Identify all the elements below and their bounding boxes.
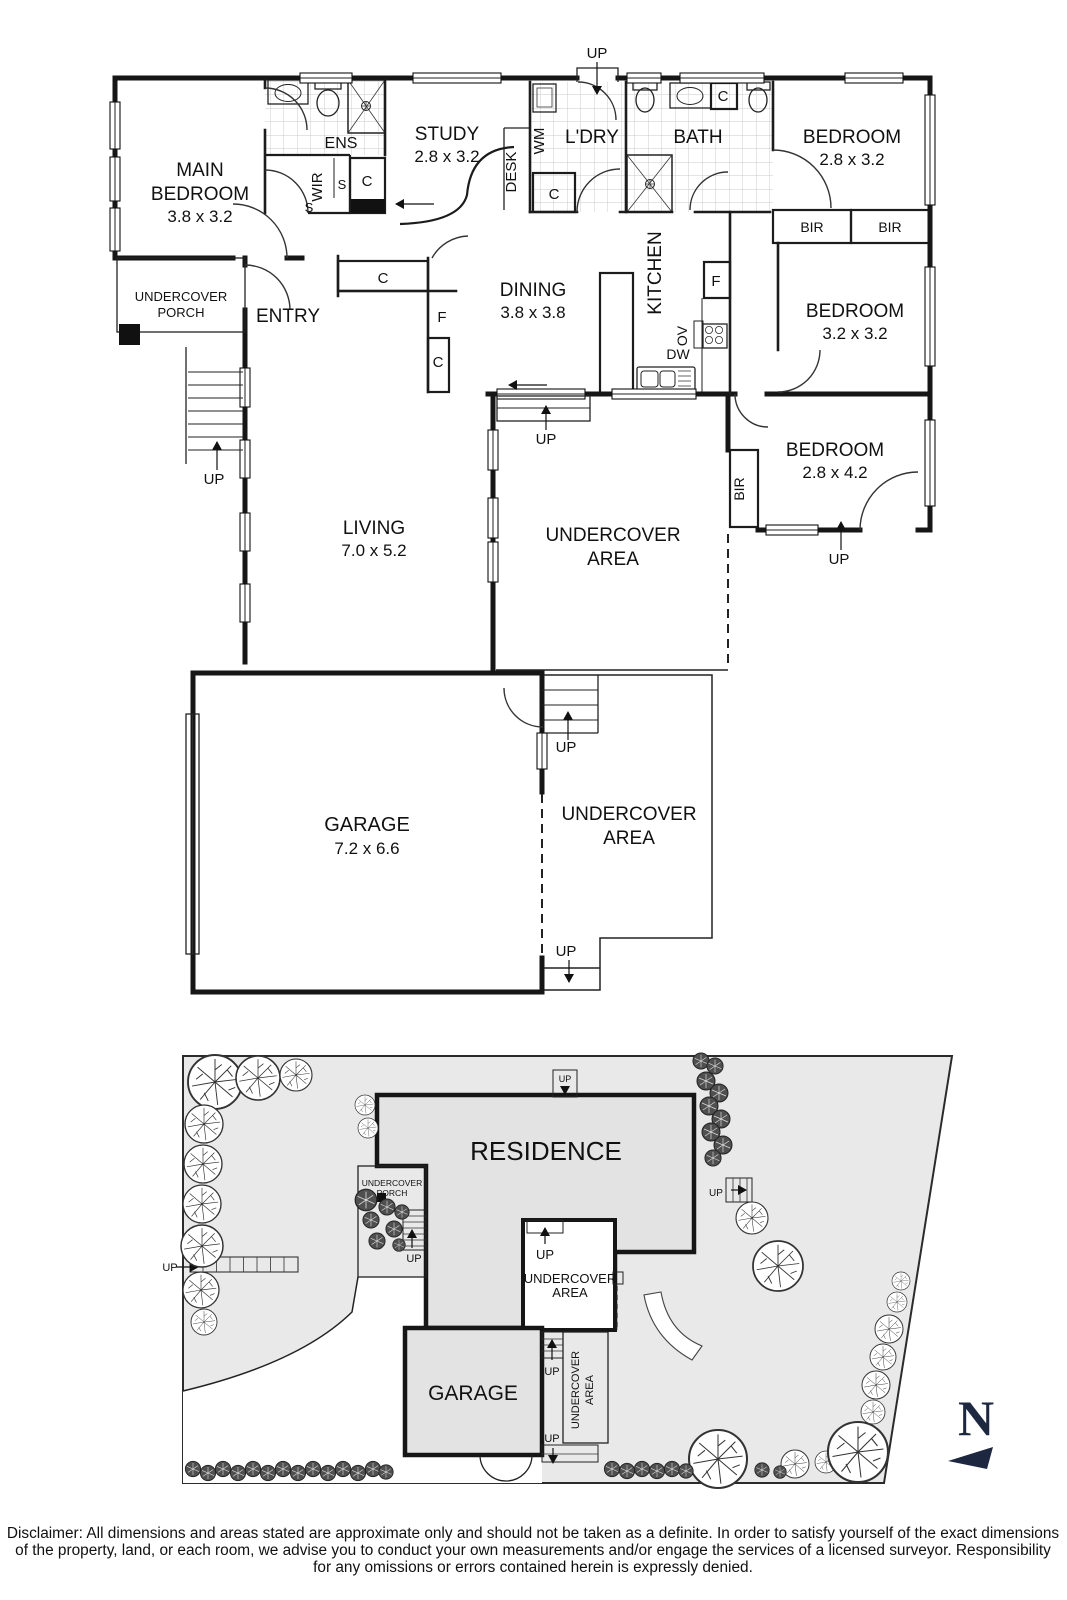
label-dw: DW [666, 346, 690, 362]
room-label-living: LIVING [343, 518, 405, 539]
room-label-study: STUDY [415, 124, 480, 145]
dims-bedroom3: 2.8 x 4.2 [802, 463, 867, 482]
label-c-bath: C [718, 88, 729, 105]
label-bir1: BIR [800, 219, 823, 235]
disclaimer-line1: Disclaimer: All dimensions and areas sta… [7, 1525, 1060, 1542]
label-bir2: BIR [878, 219, 901, 235]
site-label-strip-2: AREA [584, 1374, 596, 1405]
room-label-ens: ENS [325, 135, 358, 152]
site-plan: RESIDENCE UNDERCOVER PORCH UP UP UP UP U… [162, 1053, 952, 1488]
label-bir3: BIR [731, 477, 747, 500]
label-wm: WM [531, 128, 548, 155]
disclaimer-line3: for any omissions or errors contained he… [313, 1559, 753, 1576]
label-up-dining: UP [536, 431, 557, 448]
label-f-hall: F [437, 309, 446, 326]
site-label-strip-1: UNDERCOVER [570, 1351, 582, 1429]
kitchen-sink-icon [637, 367, 695, 391]
label-c-wir: C [362, 173, 373, 190]
label-c-hall2: C [433, 354, 444, 371]
kitchen-cooktop-icon [694, 321, 727, 348]
room-label-bath: BATH [673, 127, 722, 148]
room-label-dining: DINING [500, 280, 567, 301]
label-s2: S [305, 200, 314, 215]
site-label-up-porch: UP [406, 1253, 421, 1265]
room-label-ldry: L'DRY [565, 127, 619, 148]
site-label-porch-1: UNDERCOVER [362, 1178, 422, 1188]
compass-n-letter: N [958, 1390, 994, 1446]
label-s1: S [338, 177, 347, 192]
room-label-undercover2-1: UNDERCOVER [561, 804, 696, 825]
label-desk: DESK [503, 152, 520, 193]
disclaimer-line2: of the property, land, or each room, we … [15, 1542, 1051, 1559]
label-up-bedroom3: UP [829, 551, 850, 568]
site-label-porch-2: PORCH [377, 1188, 408, 1198]
site-label-garage: GARAGE [428, 1382, 518, 1405]
label-c-hall: C [378, 270, 389, 287]
room-label-porch-2: PORCH [158, 305, 205, 320]
dims-living: 7.0 x 5.2 [341, 541, 406, 560]
room-label-undercover1-2: AREA [587, 549, 639, 570]
floorplan-page: MAIN BEDROOM 3.8 x 3.2 ENS WIR S S C STU… [0, 0, 1067, 1600]
dims-study: 2.8 x 3.2 [414, 147, 479, 166]
label-c-ldry: C [549, 186, 560, 203]
compass: N [948, 1390, 994, 1469]
floor-plan: MAIN BEDROOM 3.8 x 3.2 ENS WIR S S C STU… [110, 45, 935, 992]
dims-main-bedroom: 3.8 x 3.2 [167, 207, 232, 226]
dims-bedroom2: 3.2 x 3.2 [822, 324, 887, 343]
room-label-bedroom2: BEDROOM [806, 301, 904, 322]
site-label-up-garage: UP [544, 1366, 559, 1378]
room-label-bedroom3: BEDROOM [786, 440, 884, 461]
site-label-up-bottom: UP [544, 1433, 559, 1445]
room-label-wir: WIR [309, 172, 326, 201]
label-f-kitchen: F [711, 273, 720, 290]
site-label-undercover-2: AREA [552, 1285, 588, 1300]
label-up-lower: UP [556, 943, 577, 960]
label-up-garagestairs: UP [556, 739, 577, 756]
disclaimer: Disclaimer: All dimensions and areas sta… [7, 1525, 1060, 1576]
site-label-up-nook: UP [559, 1074, 572, 1084]
room-label-garage: GARAGE [324, 814, 410, 836]
label-up-nook: UP [587, 45, 608, 62]
room-label-kitchen: KITCHEN [645, 231, 666, 314]
room-label-main: MAIN [176, 160, 224, 181]
compass-arrow-icon [948, 1447, 993, 1469]
dims-bedroom1: 2.8 x 3.2 [819, 150, 884, 169]
room-label-entry: ENTRY [256, 306, 320, 327]
site-label-up-box: UP [536, 1247, 554, 1262]
label-ov: OV [674, 325, 690, 346]
site-label-up-right: UP [709, 1188, 723, 1199]
dims-dining: 3.8 x 3.8 [500, 303, 565, 322]
dims-garage: 7.2 x 6.6 [334, 839, 399, 858]
site-label-up-left: UP [162, 1262, 177, 1274]
room-label-porch-1: UNDERCOVER [135, 289, 227, 304]
label-up-porchstairs: UP [204, 471, 225, 488]
room-label-undercover2-2: AREA [603, 828, 655, 849]
site-label-residence: RESIDENCE [470, 1136, 622, 1166]
room-label-undercover1-1: UNDERCOVER [545, 525, 680, 546]
room-label-main-bedroom: BEDROOM [151, 184, 249, 205]
floor-plan-labels: MAIN BEDROOM 3.8 x 3.2 ENS WIR S S C STU… [135, 45, 904, 960]
site-label-undercover-1: UNDERCOVER [524, 1271, 616, 1286]
room-label-bedroom1: BEDROOM [803, 127, 901, 148]
